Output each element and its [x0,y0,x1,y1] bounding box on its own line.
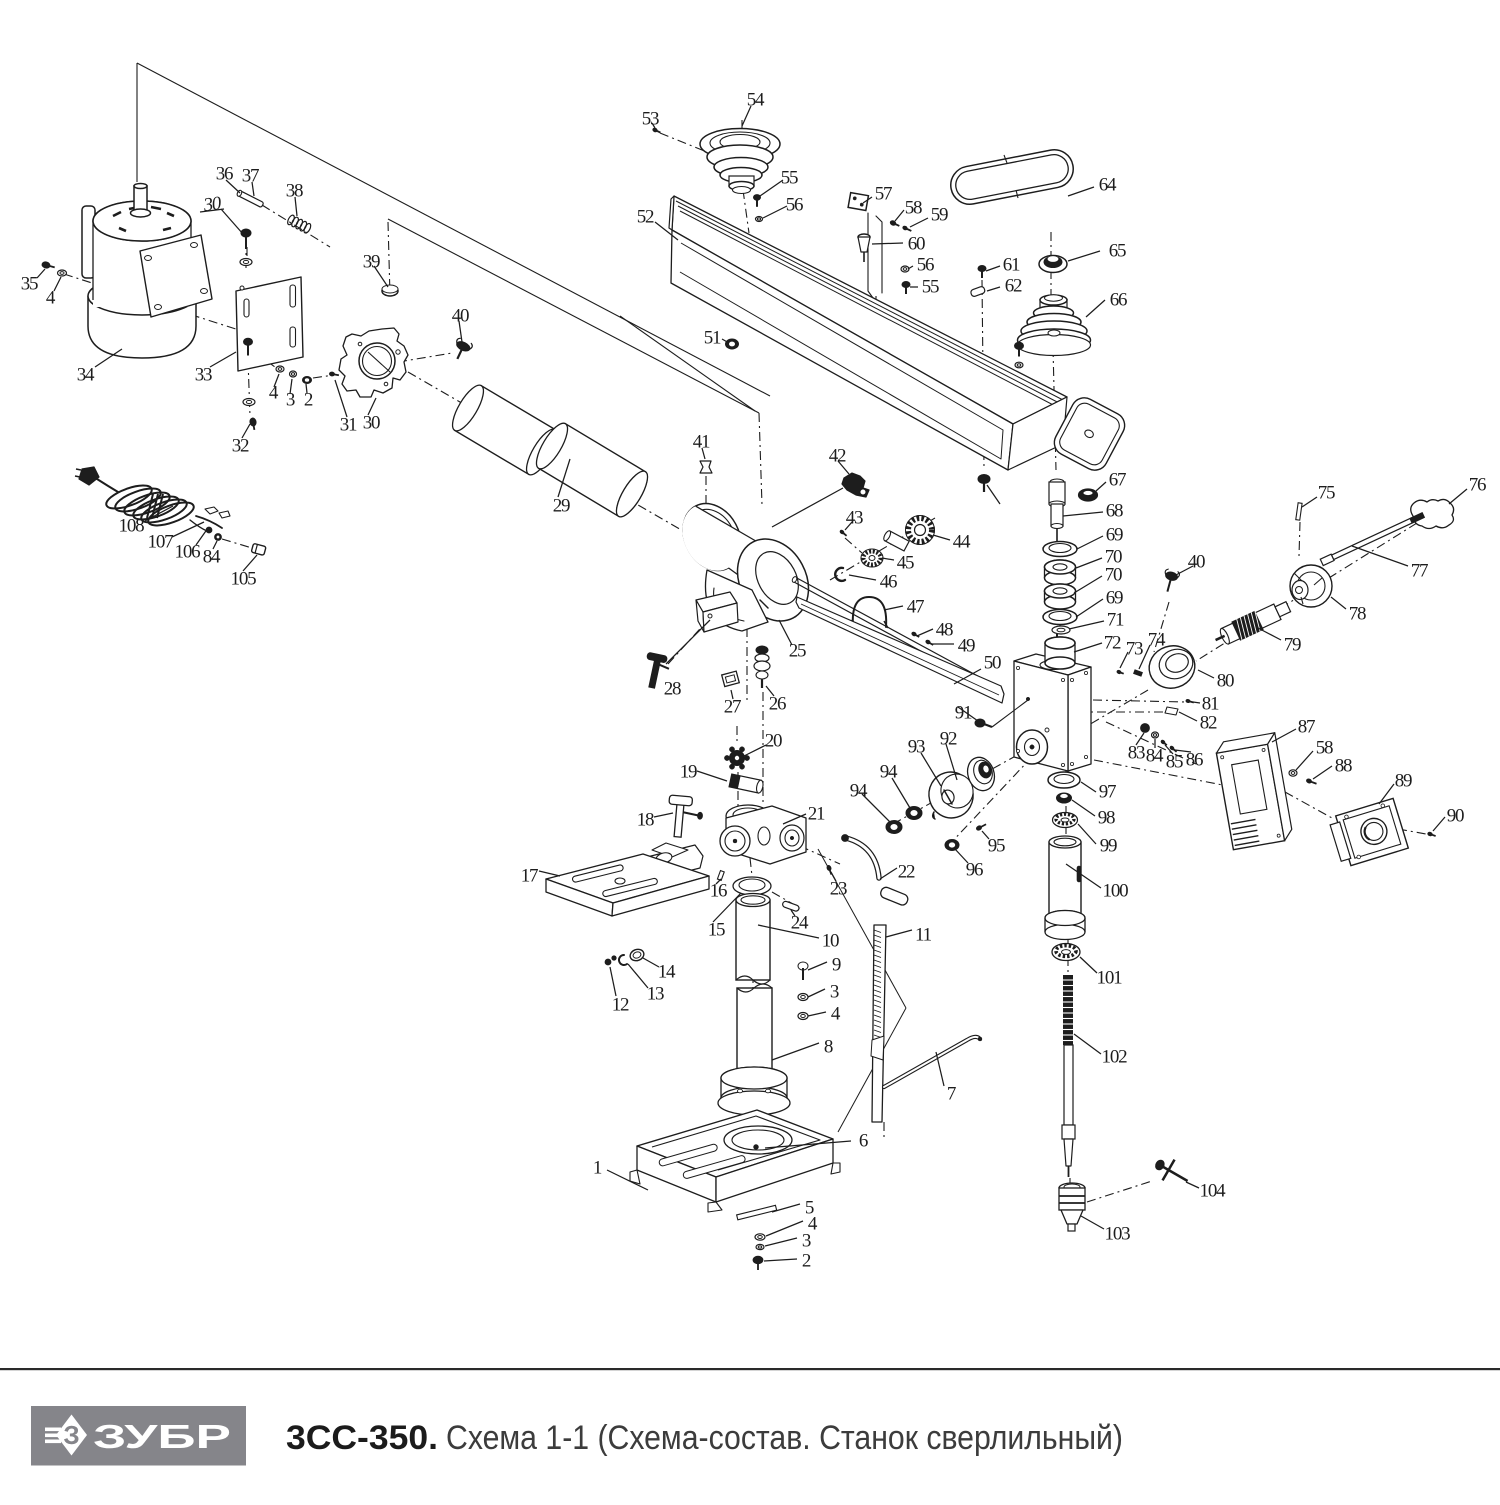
svg-text:82: 82 [1200,713,1217,734]
svg-text:95: 95 [988,836,1005,857]
svg-text:28: 28 [664,679,681,700]
svg-text:98: 98 [1098,808,1115,829]
svg-text:35: 35 [21,274,38,295]
svg-text:24: 24 [791,913,809,934]
svg-text:55: 55 [922,277,939,298]
svg-text:76: 76 [1469,475,1486,496]
svg-text:26: 26 [769,694,786,715]
svg-text:49: 49 [958,636,975,657]
svg-text:74: 74 [1148,630,1166,651]
svg-text:З: З [63,1420,79,1450]
svg-text:105: 105 [231,569,257,590]
svg-text:23: 23 [830,879,847,900]
svg-text:ЗУБР: ЗУБР [93,1418,231,1455]
svg-text:103: 103 [1105,1224,1131,1245]
svg-text:29: 29 [553,496,570,517]
svg-text:3: 3 [802,1231,811,1252]
svg-text:91: 91 [955,703,972,724]
svg-text:69: 69 [1106,525,1123,546]
svg-text:51: 51 [704,328,721,349]
svg-text:81: 81 [1202,694,1219,715]
svg-text:25: 25 [789,641,806,662]
svg-text:87: 87 [1298,717,1315,738]
svg-text:43: 43 [846,508,863,529]
svg-text:92: 92 [940,729,957,750]
svg-text:45: 45 [897,553,914,574]
svg-text:9: 9 [832,955,841,976]
svg-text:75: 75 [1318,483,1335,504]
svg-text:58: 58 [905,198,922,219]
svg-text:50: 50 [984,653,1001,674]
svg-text:72: 72 [1104,633,1121,654]
svg-text:56: 56 [917,255,934,276]
svg-text:8: 8 [824,1037,833,1058]
svg-text:53: 53 [642,109,659,130]
svg-text:106: 106 [175,542,201,563]
svg-text:62: 62 [1005,276,1022,297]
svg-text:12: 12 [612,995,629,1016]
svg-text:96: 96 [966,860,983,881]
svg-text:6: 6 [859,1131,868,1152]
svg-text:27: 27 [724,697,741,718]
svg-text:38: 38 [286,181,303,202]
svg-text:71: 71 [1107,610,1124,631]
svg-text:41: 41 [693,432,710,453]
svg-text:13: 13 [647,984,664,1005]
svg-text:86: 86 [1186,750,1203,771]
svg-text:78: 78 [1349,604,1366,625]
svg-text:18: 18 [637,810,654,831]
svg-text:97: 97 [1099,782,1116,803]
svg-text:88: 88 [1335,756,1352,777]
svg-text:46: 46 [880,572,897,593]
svg-text:104: 104 [1200,1181,1227,1202]
svg-text:22: 22 [898,862,915,883]
svg-text:3СС-350.: 3СС-350. [286,1419,438,1457]
svg-text:56: 56 [786,195,803,216]
svg-text:80: 80 [1217,671,1234,692]
svg-text:14: 14 [658,962,676,983]
svg-text:69: 69 [1106,588,1123,609]
svg-text:94: 94 [850,781,868,802]
svg-text:84: 84 [1146,746,1164,767]
svg-text:66: 66 [1110,290,1127,311]
svg-text:94: 94 [880,762,898,783]
svg-text:Схема 1-1 (Схема-состав. Стано: Схема 1-1 (Схема-состав. Станок сверлиль… [446,1419,1123,1457]
svg-text:42: 42 [829,446,846,467]
svg-text:3: 3 [286,390,295,411]
svg-text:44: 44 [953,532,971,553]
svg-text:58: 58 [1316,738,1333,759]
svg-text:52: 52 [637,207,654,228]
svg-text:79: 79 [1284,635,1301,656]
svg-text:11: 11 [915,925,932,946]
svg-text:39: 39 [363,252,380,273]
svg-text:10: 10 [822,931,839,952]
svg-text:108: 108 [119,516,145,537]
svg-text:99: 99 [1100,836,1117,857]
svg-text:3: 3 [830,982,839,1003]
svg-text:37: 37 [242,166,259,187]
svg-text:107: 107 [148,532,174,553]
svg-text:15: 15 [708,920,725,941]
svg-text:57: 57 [875,184,892,205]
svg-text:2: 2 [304,390,313,411]
svg-text:67: 67 [1109,470,1126,491]
svg-text:77: 77 [1411,561,1428,582]
svg-text:90: 90 [1447,806,1464,827]
svg-text:70: 70 [1105,565,1122,586]
svg-text:65: 65 [1109,241,1126,262]
svg-text:31: 31 [340,415,357,436]
svg-text:83: 83 [1128,743,1145,764]
svg-text:34: 34 [77,365,95,386]
svg-text:73: 73 [1126,639,1143,660]
svg-text:7: 7 [947,1084,956,1105]
svg-text:68: 68 [1106,501,1123,522]
svg-text:64: 64 [1099,175,1117,196]
svg-text:60: 60 [908,234,925,255]
svg-text:1: 1 [593,1158,602,1179]
svg-text:19: 19 [680,762,697,783]
svg-text:89: 89 [1395,771,1412,792]
svg-text:40: 40 [452,306,469,327]
svg-text:54: 54 [747,90,765,111]
svg-text:47: 47 [907,597,924,618]
svg-text:36: 36 [216,164,233,185]
svg-text:16: 16 [710,881,727,902]
svg-text:20: 20 [765,731,782,752]
svg-text:101: 101 [1097,968,1123,989]
svg-text:55: 55 [781,168,798,189]
svg-text:30: 30 [363,413,380,434]
svg-text:93: 93 [908,737,925,758]
svg-text:40: 40 [1188,552,1205,573]
svg-text:61: 61 [1003,255,1020,276]
svg-text:48: 48 [936,620,953,641]
svg-text:33: 33 [195,365,212,386]
svg-text:2: 2 [802,1251,811,1272]
svg-text:84: 84 [203,547,221,568]
svg-text:32: 32 [232,436,249,457]
svg-text:21: 21 [808,804,825,825]
svg-text:102: 102 [1102,1047,1128,1068]
svg-text:85: 85 [1166,752,1183,773]
svg-text:100: 100 [1103,881,1129,902]
svg-text:17: 17 [521,866,538,887]
svg-text:59: 59 [931,205,948,226]
